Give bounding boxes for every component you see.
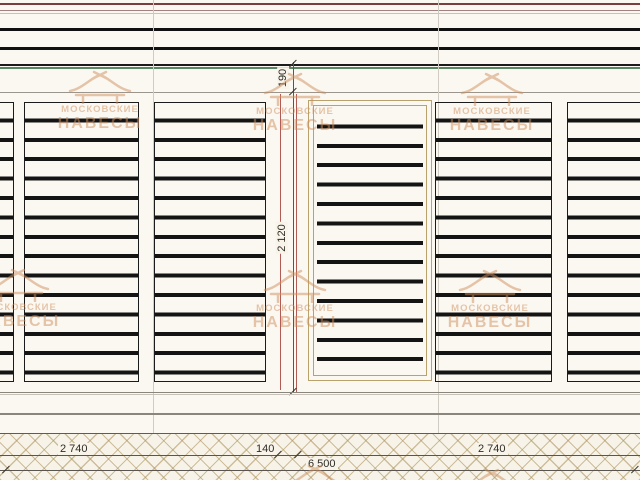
dimension-label-left-span: 2 740	[58, 443, 90, 455]
fence-panel-left-partial	[0, 102, 14, 382]
canopy-icon	[460, 70, 524, 106]
fence-top-line	[0, 92, 640, 93]
dimension-label-total-span: 6 500	[306, 458, 338, 470]
dimension-extension-red-right	[296, 94, 297, 392]
roof-ridge-line-maroon	[0, 3, 640, 5]
fence-panel-4	[435, 102, 552, 382]
gate-inner-frame	[313, 105, 427, 376]
fence-panel-right-partial	[567, 102, 640, 382]
roof-beam-line-2	[0, 47, 640, 50]
fence-panel-3	[154, 102, 266, 382]
dimension-label-right-span: 2 740	[476, 443, 508, 455]
fence-bottom-line-2	[0, 394, 640, 395]
plinth-line	[0, 413, 640, 415]
canopy-icon	[68, 68, 132, 104]
fence-bottom-line	[0, 392, 640, 393]
eaves-line	[0, 64, 640, 66]
vertical-dimension-line	[293, 62, 294, 393]
fence-panel-2	[24, 102, 139, 382]
dimension-label-center-span: 140	[254, 443, 276, 455]
dimension-label-roof-offset: 190	[277, 67, 289, 89]
horizontal-dimension-line-1	[0, 455, 640, 456]
roof-beam-line-1	[0, 28, 640, 31]
dimension-label-fence-height: 2 120	[276, 222, 288, 254]
roof-thin-line	[0, 10, 640, 11]
gutter-green-line	[0, 67, 640, 69]
horizontal-dimension-line-2	[0, 470, 640, 471]
gate-slats	[317, 109, 423, 372]
gate-panel	[308, 100, 432, 381]
fence-elevation-drawing: 190 2 120 2 740 140 2 740 6 500 МОСКОВСК…	[0, 0, 640, 480]
roof-thin-line-2	[0, 13, 640, 14]
ground-hatch	[0, 434, 640, 480]
